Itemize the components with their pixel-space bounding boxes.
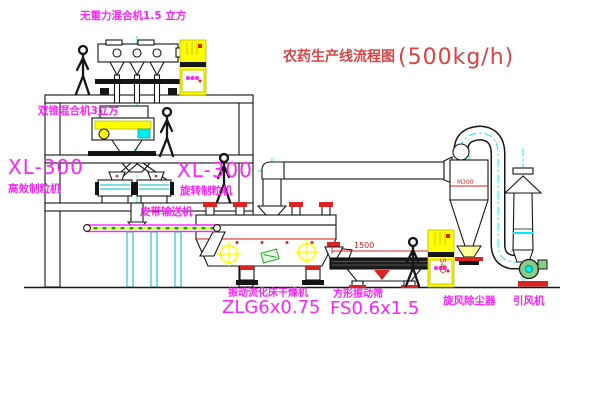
worker-level2 (160, 108, 173, 156)
label-gravity-mixer: 无重力混合机1.5 立方 (80, 11, 186, 23)
label-cyclone: 旋风除尘器 (443, 296, 496, 308)
title-text: 农药生产线流程图 (283, 50, 395, 65)
label-granulator-right-model: XL-300 (177, 159, 253, 181)
label-granulator-left-model: XL-300 (8, 156, 84, 178)
label-cone-mixer: 双锥混合机3立方 (38, 106, 119, 118)
label-dryer-model: ZLG6x0.75 (222, 298, 321, 318)
diagram-title: 农药生产线流程图 (500kg/h) (283, 46, 514, 70)
gravity-free-mixer (95, 40, 193, 103)
dimension-sifter-height: 540 (437, 258, 446, 273)
cad-flow-diagram: 农药生产线流程图 (500kg/h) 无重力混合机1.5 立方 双锥混合机3立方… (0, 0, 600, 403)
label-granulator-right-name: 旋转制粒机 (180, 186, 233, 198)
control-cabinet-1 (180, 40, 206, 95)
label-granulator-left-name: 高效制粒机 (8, 184, 61, 196)
label-sifter-model: FS0.6x1.5 (330, 299, 419, 319)
title-capacity: (500kg/h) (398, 46, 514, 70)
exhaust-stack (505, 168, 541, 262)
worker-roof (76, 46, 89, 94)
granulator-left (95, 172, 135, 203)
label-belt-conveyor: 皮带输送机 (140, 207, 193, 219)
dimension-sifter-length: 1500 (354, 242, 374, 251)
cyclone-marking: M300 (457, 180, 474, 187)
granulator-right (134, 172, 174, 203)
dryer-exhaust-duct (258, 162, 444, 215)
label-fan: 引风机 (513, 296, 545, 308)
induced-draft-fan (518, 260, 548, 287)
